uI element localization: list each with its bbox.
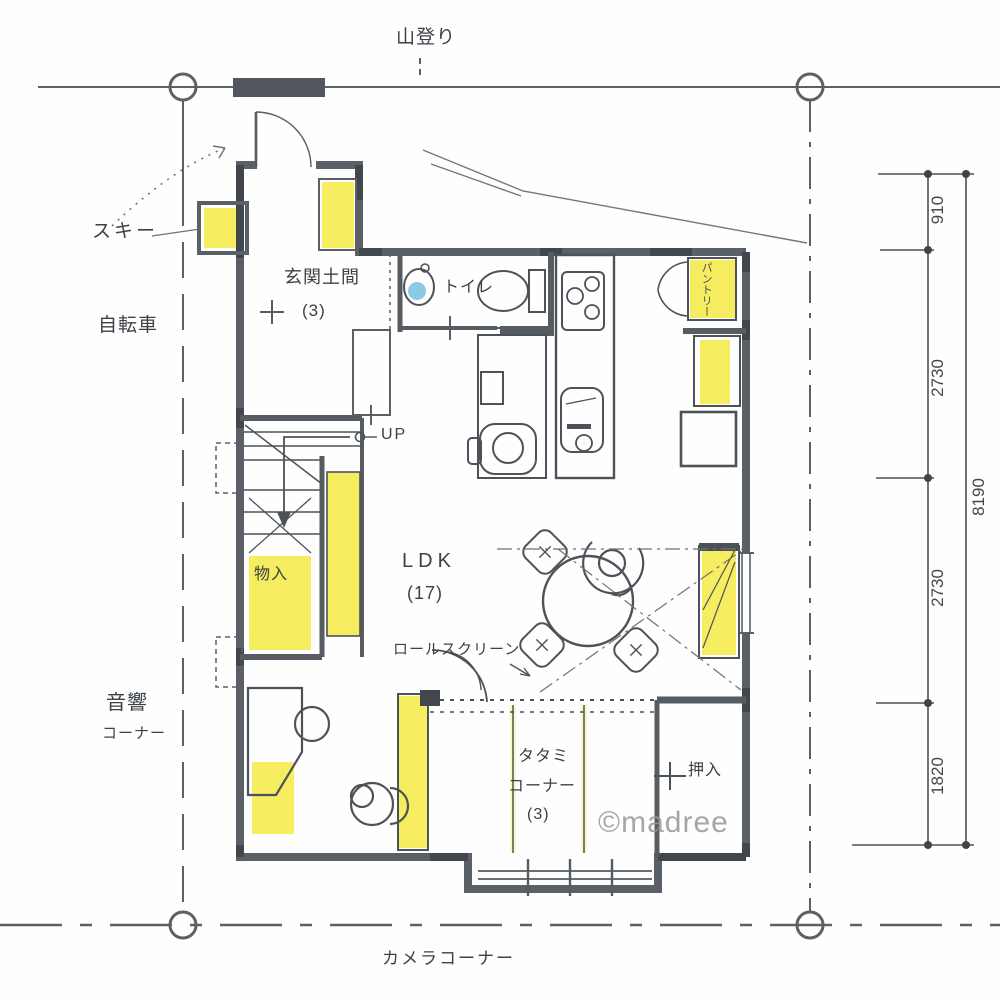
stove-icon bbox=[562, 272, 604, 330]
dim-2730-lower: 2730 bbox=[928, 569, 947, 607]
ldk-size-label: (17) bbox=[407, 584, 443, 604]
floor-plan-drawing: 910 2730 2730 1820 8190 bbox=[0, 0, 1000, 1000]
dimension-lines bbox=[852, 170, 974, 849]
roof-lines bbox=[423, 150, 807, 243]
shoe-cabinet bbox=[353, 330, 390, 425]
approach-label: 山登り bbox=[396, 28, 456, 49]
pantry-label: パントリー bbox=[700, 262, 712, 318]
dining-table-icon bbox=[543, 556, 633, 646]
audio-label-line2: コーナー bbox=[102, 726, 166, 743]
bicycle-label: 自転車 bbox=[98, 316, 158, 337]
roll-screen-label: ロールスクリーン bbox=[393, 642, 520, 659]
toilet-label: トイレ bbox=[443, 279, 494, 297]
audio-label-line1: 音響 bbox=[106, 692, 148, 714]
closet-label: 物入 bbox=[254, 566, 288, 584]
dim-8190: 8190 bbox=[969, 478, 988, 516]
fridge-icon bbox=[681, 412, 736, 466]
kitchen-sink-icon bbox=[561, 388, 603, 452]
entrance-gate bbox=[233, 78, 325, 97]
entrance-size-label: (3) bbox=[302, 302, 326, 321]
dining-person-icon bbox=[583, 542, 643, 595]
entrance-room-label: 玄関土間 bbox=[284, 268, 360, 288]
tatami-label-line2: コーナー bbox=[508, 778, 576, 796]
camera-corner-label: カメラコーナー bbox=[382, 950, 515, 969]
toilet-sink-icon bbox=[404, 264, 434, 305]
window-mark-icon bbox=[260, 300, 284, 324]
dim-1820: 1820 bbox=[928, 757, 947, 795]
dimension-labels: 910 2730 2730 1820 8190 bbox=[928, 196, 988, 795]
kitchen-counter bbox=[556, 255, 614, 478]
tatami-size-label: (3) bbox=[527, 806, 550, 824]
site-boundary bbox=[0, 58, 1000, 938]
dim-2730-upper: 2730 bbox=[928, 359, 947, 397]
watermark: ©madree bbox=[598, 806, 729, 840]
dim-910: 910 bbox=[928, 196, 947, 224]
ski-label: スキー bbox=[92, 222, 158, 243]
east-window bbox=[738, 553, 754, 633]
ldk-label: LDK bbox=[402, 550, 456, 572]
entrance-door-icon bbox=[256, 112, 311, 167]
up-label: UP bbox=[381, 426, 407, 444]
desk-chair-icon bbox=[295, 707, 329, 741]
closet-door-mark bbox=[249, 498, 311, 553]
window-mark-icon bbox=[438, 316, 462, 340]
oshiire-label: 押入 bbox=[688, 762, 722, 780]
floor-plan-page: 910 2730 2730 1820 8190 山登り スキー 自転車 玄関土間… bbox=[0, 0, 1000, 1000]
tatami-label-line1: タタミ bbox=[518, 748, 569, 766]
